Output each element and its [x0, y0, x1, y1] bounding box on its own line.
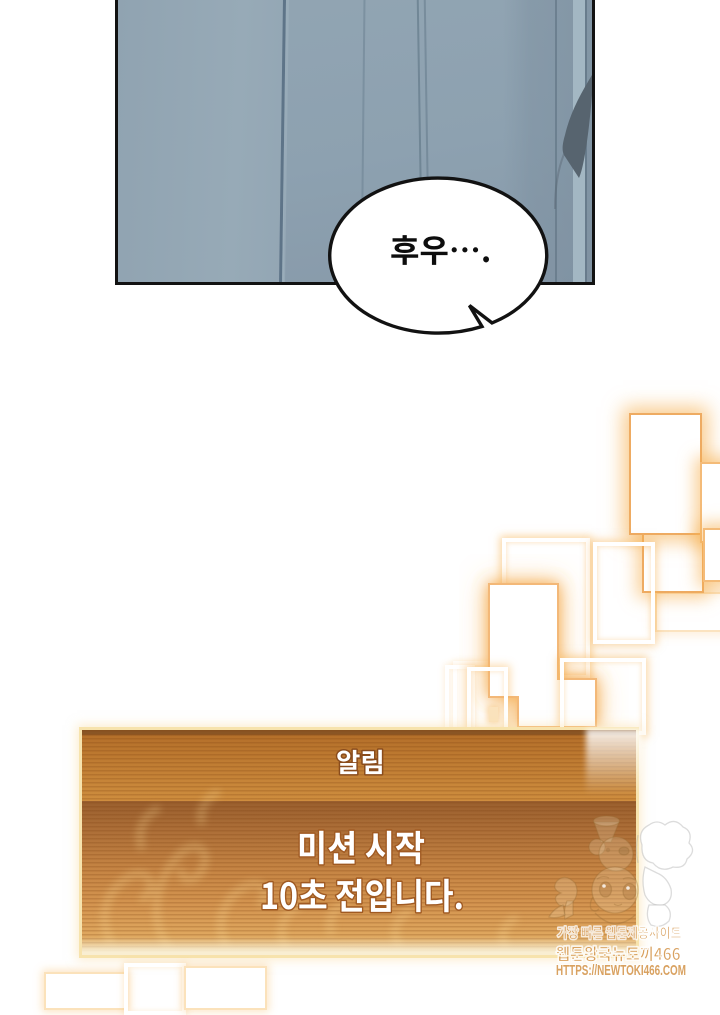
svg-text:HTTPS://NEWTOKI466.COM: HTTPS://NEWTOKI466.COM — [556, 962, 686, 979]
